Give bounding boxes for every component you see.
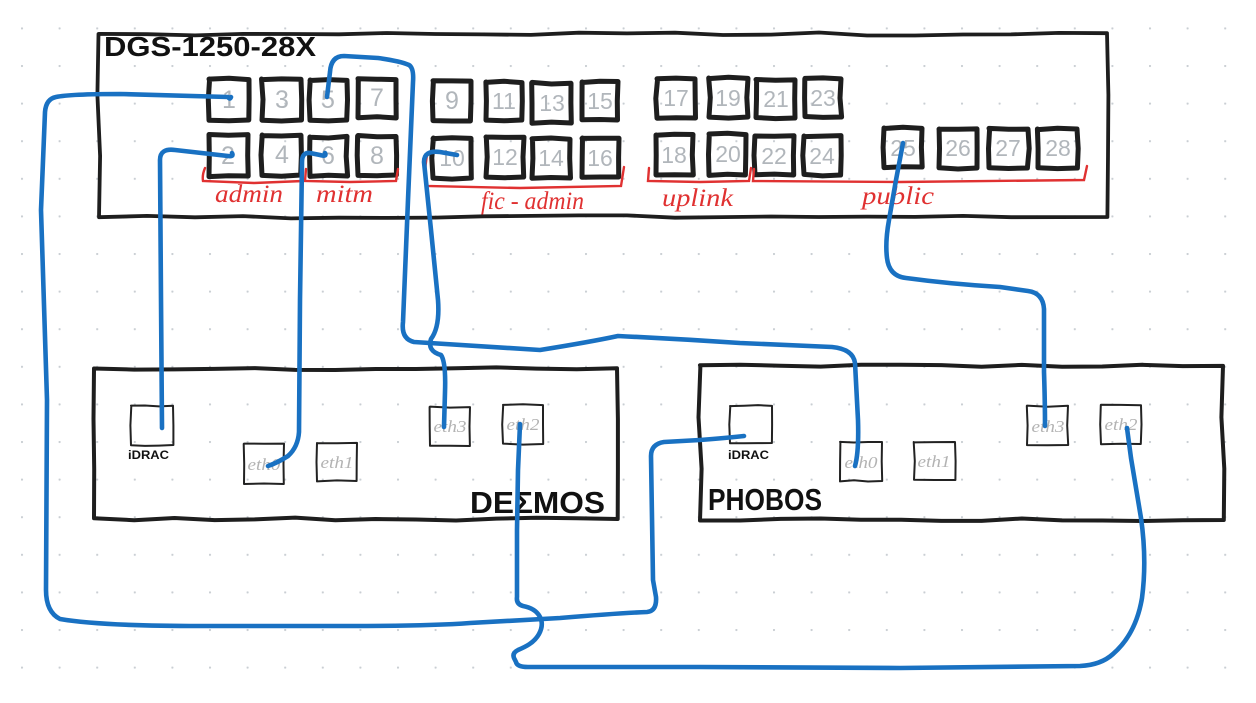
svg-text:eth1: eth1 <box>321 453 354 472</box>
svg-text:eth2: eth2 <box>507 415 541 434</box>
svg-text:22: 22 <box>761 143 787 169</box>
svg-text:4: 4 <box>275 141 289 169</box>
svg-text:16: 16 <box>587 145 613 171</box>
svg-text:mitm: mitm <box>316 181 373 208</box>
svg-text:10: 10 <box>439 145 465 171</box>
svg-text:23: 23 <box>810 85 836 111</box>
svg-text:eth0: eth0 <box>845 453 879 472</box>
svg-text:DGS-1250-28X: DGS-1250-28X <box>104 31 316 62</box>
svg-text:8: 8 <box>370 142 384 170</box>
svg-text:eth2: eth2 <box>1105 415 1139 434</box>
svg-text:26: 26 <box>945 135 971 161</box>
svg-text:7: 7 <box>370 84 384 112</box>
svg-text:27: 27 <box>995 135 1021 161</box>
svg-text:PHOBOS: PHOBOS <box>708 482 822 517</box>
svg-text:17: 17 <box>663 85 689 111</box>
svg-text:19: 19 <box>715 85 741 111</box>
svg-text:14: 14 <box>538 145 564 171</box>
svg-text:eth3: eth3 <box>1032 417 1065 436</box>
svg-text:11: 11 <box>492 88 516 114</box>
svg-text:eth3: eth3 <box>434 417 467 436</box>
svg-text:24: 24 <box>809 143 835 169</box>
svg-text:12: 12 <box>492 144 518 170</box>
svg-text:uplink: uplink <box>662 185 734 212</box>
svg-text:fic - admin: fic - admin <box>481 188 584 215</box>
svg-text:DEΣMOS: DEΣMOS <box>470 485 605 520</box>
svg-text:28: 28 <box>1045 135 1071 161</box>
svg-text:iDRAC: iDRAC <box>728 448 769 462</box>
svg-text:15: 15 <box>587 88 613 114</box>
svg-text:20: 20 <box>715 141 741 167</box>
svg-text:admin: admin <box>215 181 283 208</box>
svg-text:21: 21 <box>763 86 789 112</box>
svg-text:eth1: eth1 <box>918 452 951 471</box>
svg-text:9: 9 <box>445 87 459 115</box>
svg-text:18: 18 <box>661 142 687 168</box>
svg-text:iDRAC: iDRAC <box>128 448 169 462</box>
svg-text:13: 13 <box>539 90 565 116</box>
svg-text:3: 3 <box>275 86 289 114</box>
